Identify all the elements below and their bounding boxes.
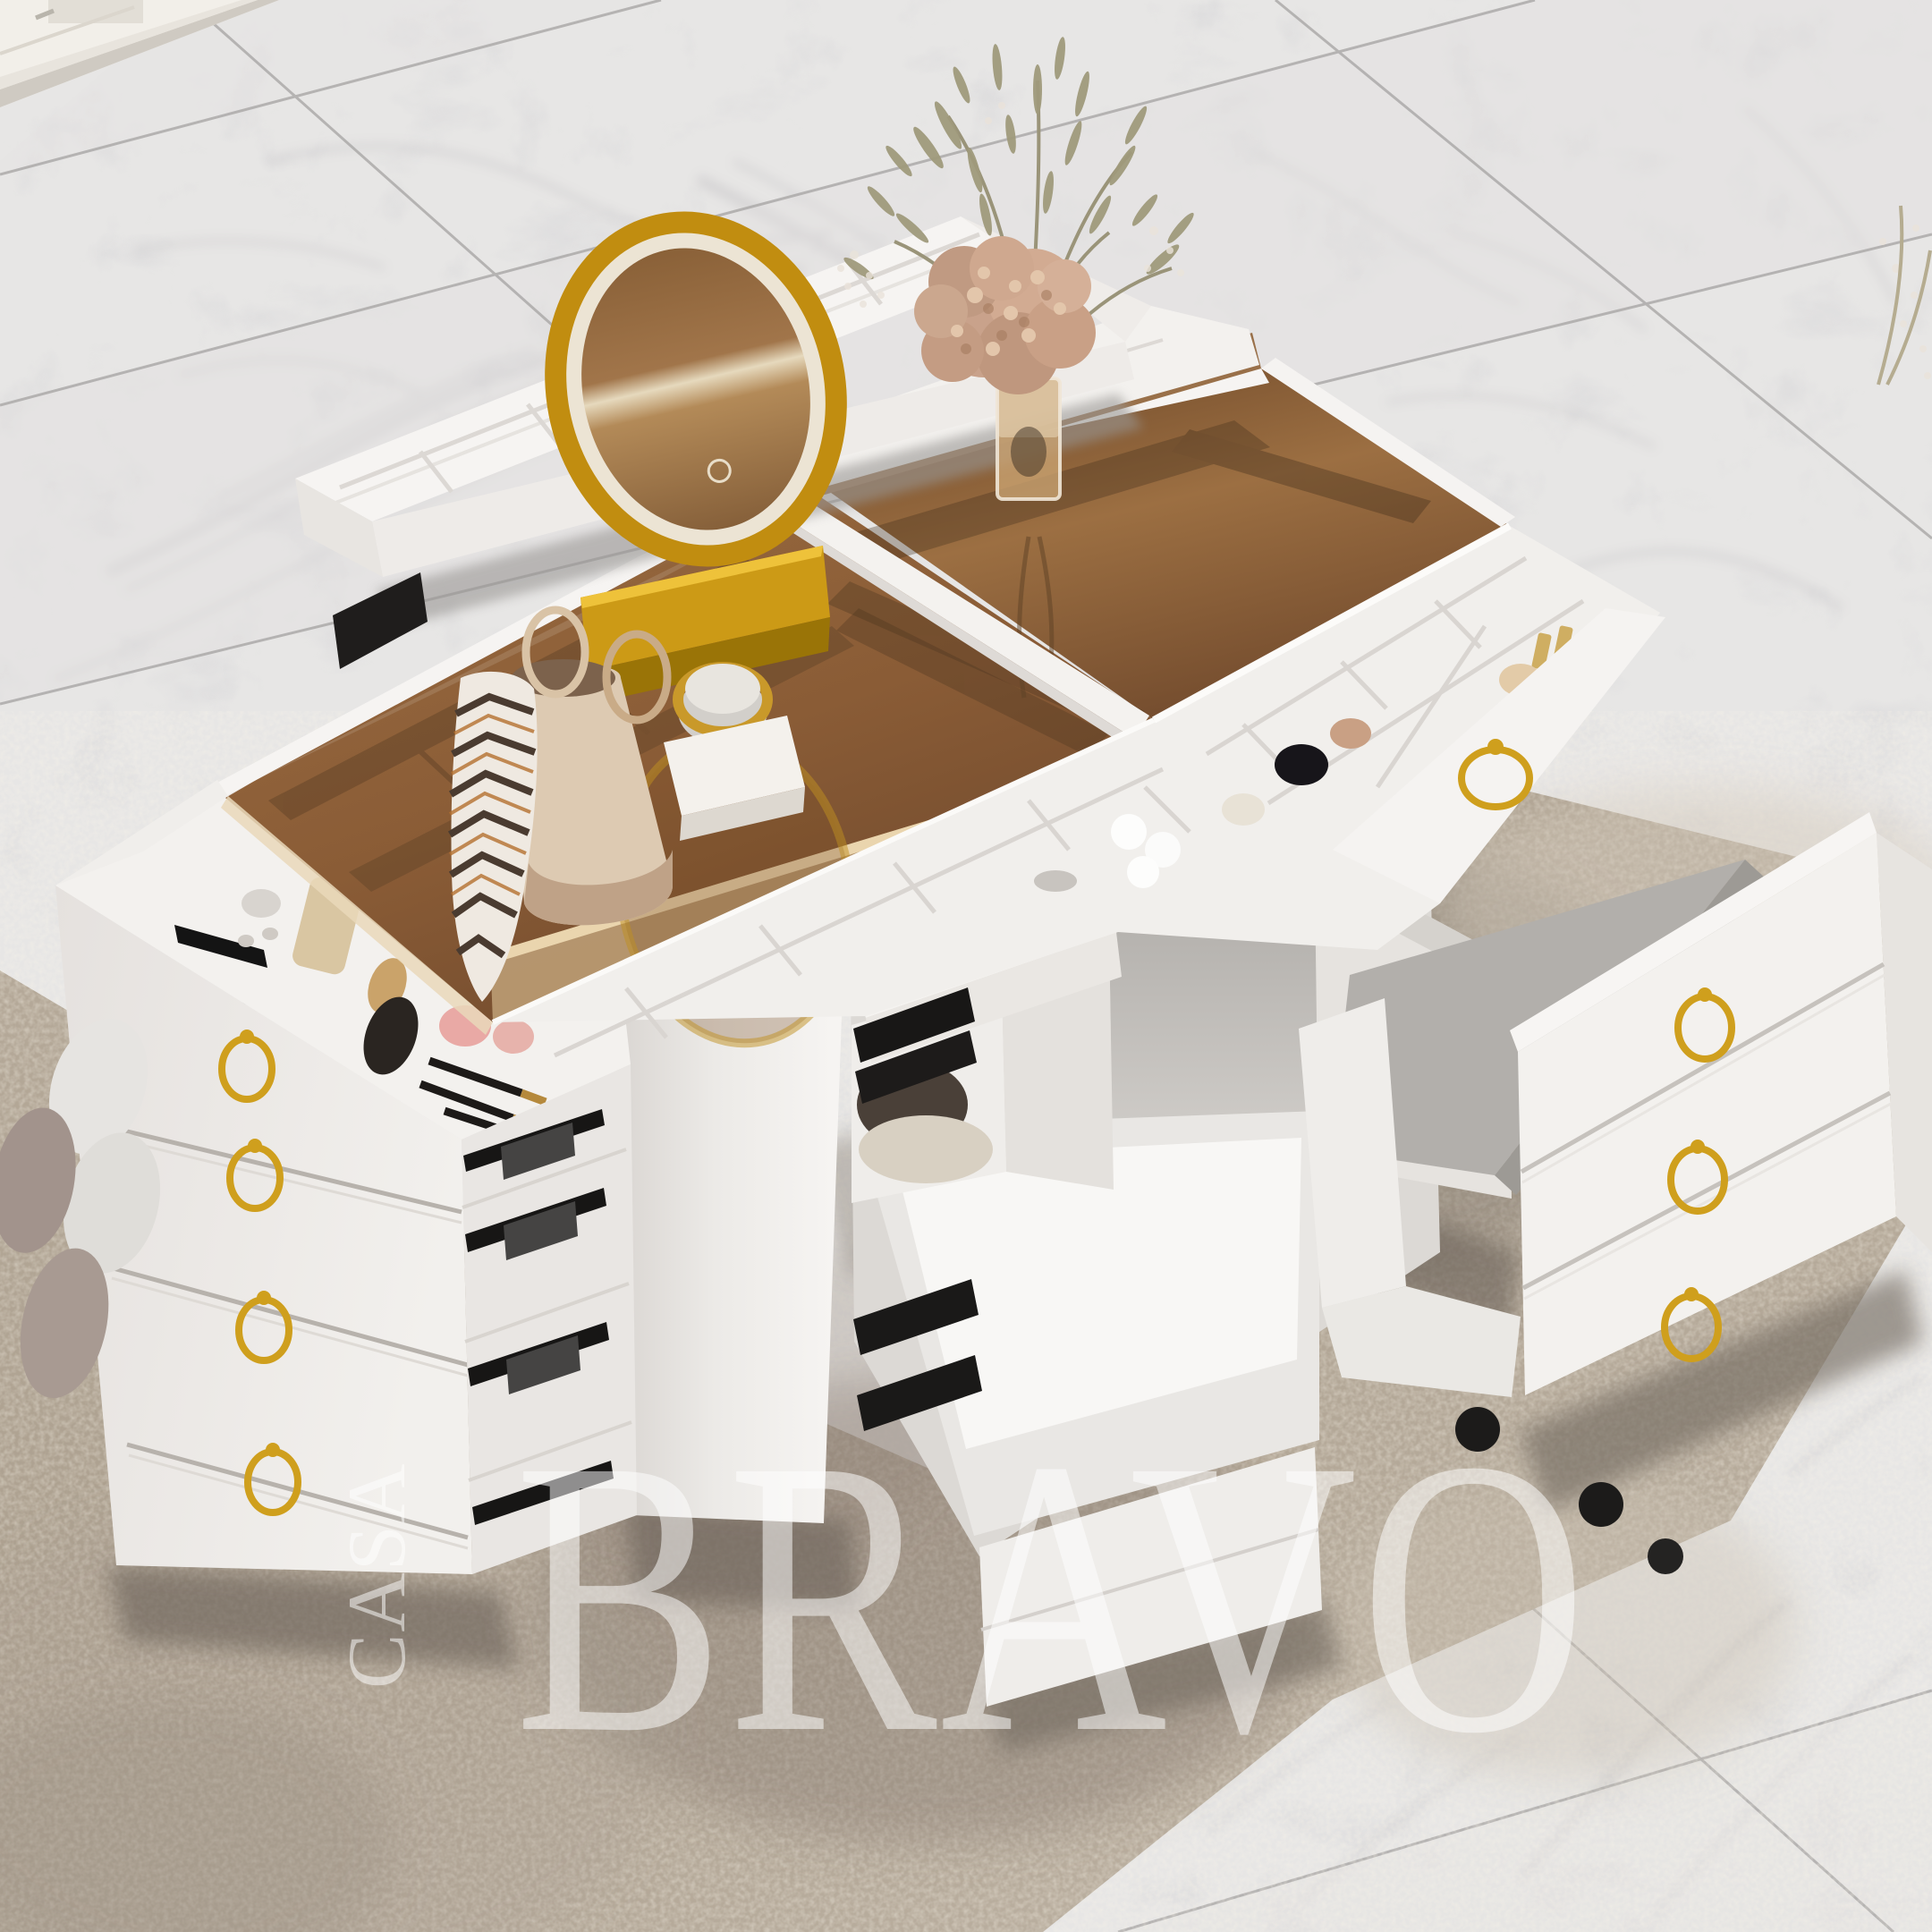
svg-text:BRAVO: BRAVO: [514, 1379, 1590, 1815]
svg-text:CASA: CASA: [331, 1462, 422, 1689]
